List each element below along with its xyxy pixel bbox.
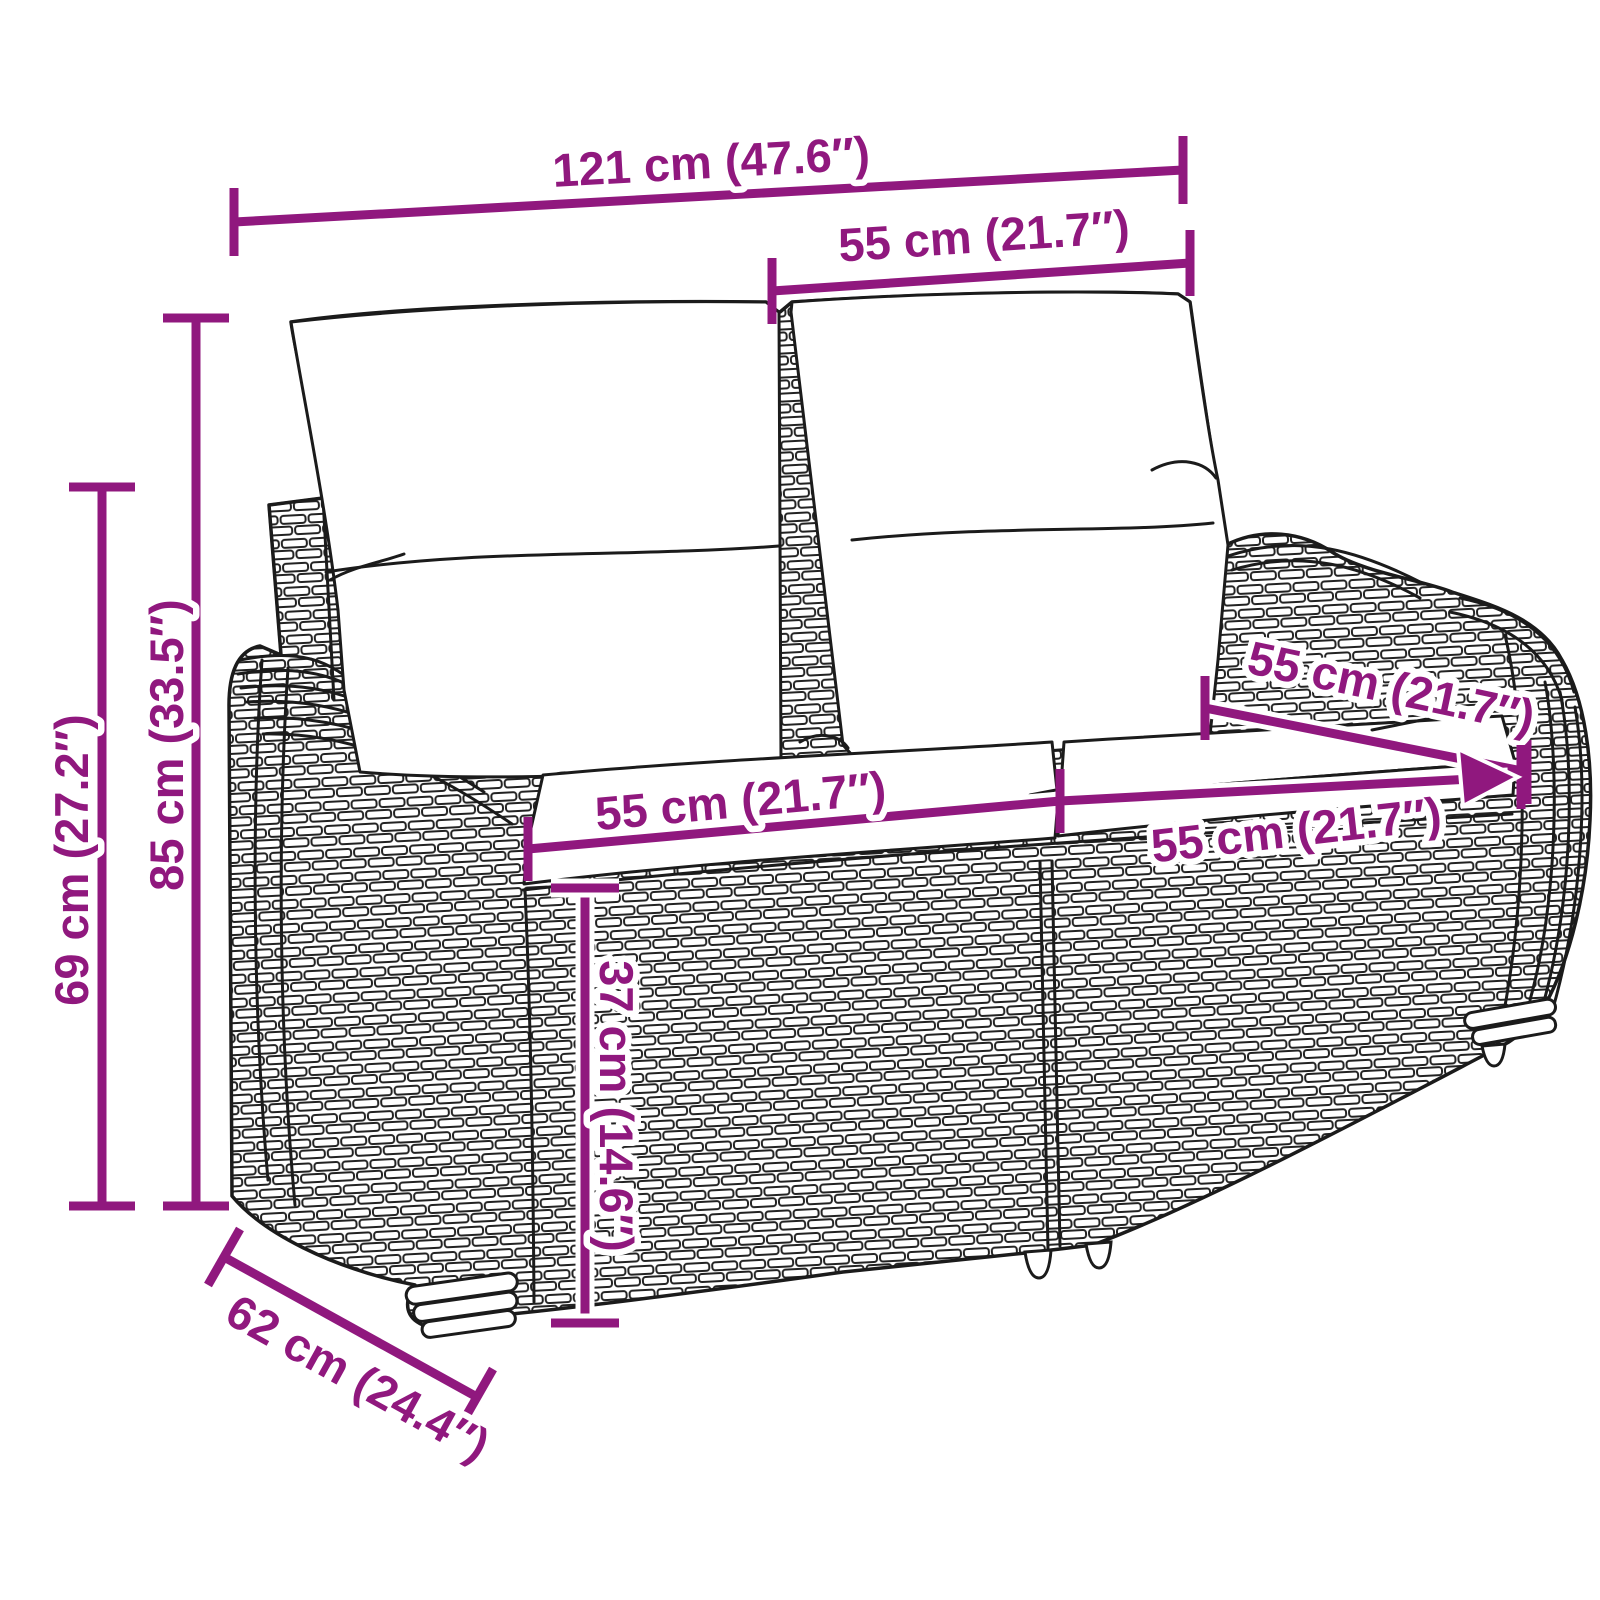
dimension-diagram: 121 cm (47.6″) 55 cm (21.7″) 85 cm (33.5… (0, 0, 1600, 1600)
right-back-cushion (791, 292, 1228, 756)
dim-seat-height-label: 37 cm (14.6″) (590, 960, 643, 1252)
middle-foot-left (1025, 1250, 1051, 1278)
right-foot-tab (1482, 1044, 1505, 1066)
dim-armrest-height-label: 69 cm (27.2″) (45, 714, 98, 1006)
middle-foot-right (1086, 1242, 1111, 1268)
dim-back-cushion-width-label: 55 cm (21.7″) (837, 199, 1131, 271)
dim-total-height-label: 85 cm (33.5″) (140, 599, 193, 891)
dim-total-height: 85 cm (33.5″) (140, 318, 229, 1206)
diagram-canvas: 121 cm (47.6″) 55 cm (21.7″) 85 cm (33.5… (0, 0, 1600, 1600)
tick (208, 1229, 240, 1285)
dim-armrest-height: 69 cm (27.2″) (45, 487, 135, 1206)
left-back-cushion (291, 302, 781, 780)
